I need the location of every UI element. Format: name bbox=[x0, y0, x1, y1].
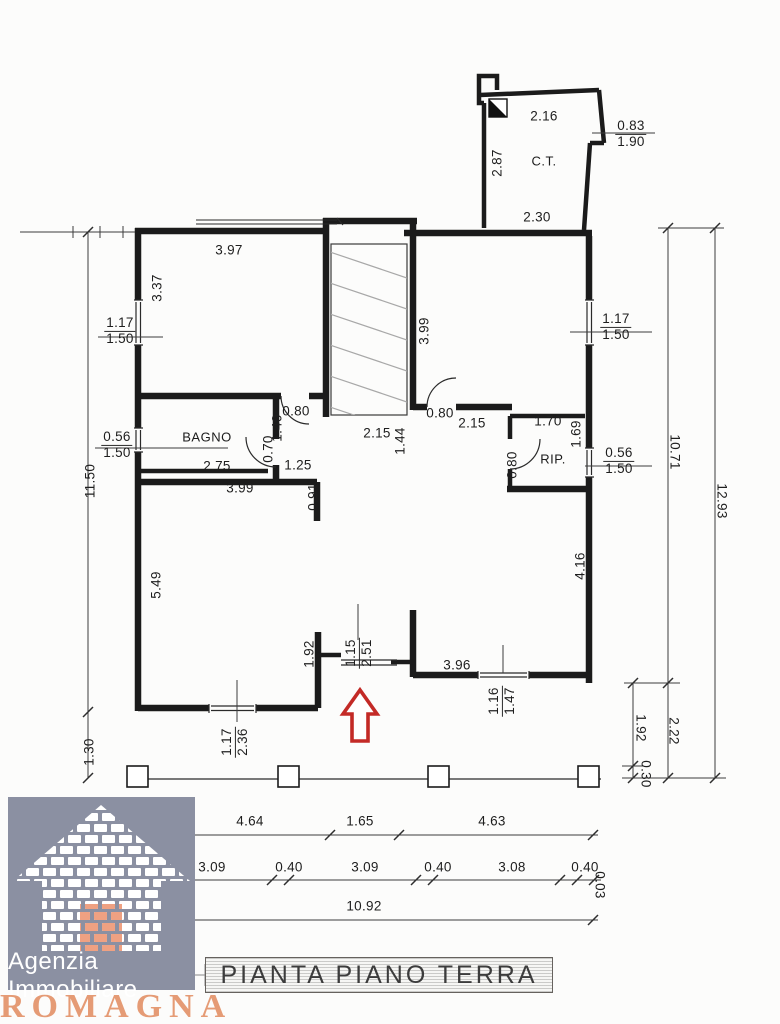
ct-marker bbox=[489, 99, 507, 117]
dim-label-d215a: 2.15 bbox=[363, 426, 390, 441]
dim-label-d192a: 1.92 bbox=[302, 640, 317, 667]
dim-pair-bottom: 1.90 bbox=[617, 135, 644, 150]
dim-label-d215b: 2.15 bbox=[458, 416, 485, 431]
dim-label-d216: 2.16 bbox=[530, 109, 557, 124]
dim-label-d275: 2.75 bbox=[203, 459, 230, 474]
dim-pair-top: 1.16 bbox=[487, 685, 503, 716]
dim-label-d1071: 10.71 bbox=[668, 434, 683, 469]
dim-label-d040a: 0.40 bbox=[275, 860, 302, 875]
dim-label-d416: 4.16 bbox=[573, 552, 588, 579]
entrance-arrow bbox=[343, 690, 377, 741]
dim-label-d464: 4.64 bbox=[236, 814, 263, 829]
dim-label-d080c: 0.80 bbox=[505, 451, 520, 478]
dim-pair-bottom: 1.47 bbox=[503, 687, 518, 714]
room-label-bagno: BAGNO bbox=[182, 430, 231, 445]
dim-pair-pL2: 0.561.50 bbox=[101, 430, 132, 460]
dim-label-d165: 1.65 bbox=[346, 814, 373, 829]
dim-pair-bottom: 1.50 bbox=[602, 328, 629, 343]
dim-label-d130: 1.30 bbox=[82, 738, 97, 765]
dim-pair-pR1: 1.171.50 bbox=[600, 312, 631, 342]
plan-title: PIANTA PIANO TERRA bbox=[220, 961, 537, 990]
dim-label-d080b: 0.80 bbox=[426, 406, 453, 421]
dim-pair-pW2: 1.172.36 bbox=[220, 726, 250, 757]
agency-logo: Agenzia Immobiliare bbox=[8, 797, 195, 990]
porch-pillars bbox=[127, 766, 599, 787]
dim-pair-bottom: 1.50 bbox=[106, 332, 133, 347]
dim-label-d399b: 3.99 bbox=[226, 481, 253, 496]
dim-label-d170: 1.70 bbox=[534, 414, 561, 429]
dim-pair-top: 1.17 bbox=[220, 726, 236, 757]
agency-brand: ROMAGNA bbox=[0, 988, 206, 1024]
dim-label-d1092: 10.92 bbox=[346, 899, 381, 914]
dim-label-d070: 0.70 bbox=[261, 435, 276, 462]
dim-label-d549: 5.49 bbox=[149, 571, 164, 598]
dim-label-d222: 2.22 bbox=[667, 717, 682, 744]
dim-label-d397: 3.97 bbox=[215, 243, 242, 258]
balcony-rail bbox=[196, 218, 343, 225]
mosaic-house-icon bbox=[8, 801, 195, 951]
dim-pair-pR2: 0.561.50 bbox=[603, 446, 634, 476]
dim-pair-top: 1.17 bbox=[104, 316, 135, 332]
dim-pair-top: 1.15 bbox=[344, 637, 360, 668]
dim-pair-top: 1.17 bbox=[600, 312, 631, 328]
dim-pair-bottom: 2.36 bbox=[236, 728, 251, 755]
dim-label-d399: 3.99 bbox=[417, 317, 432, 344]
room-label-ct: C.T. bbox=[531, 154, 556, 169]
dim-label-d003: 0.03 bbox=[593, 871, 608, 898]
dim-pair-bottom: 1.50 bbox=[605, 462, 632, 477]
plan-title-box: PIANTA PIANO TERRA bbox=[205, 957, 553, 993]
dim-label-d169: 1.69 bbox=[569, 420, 584, 447]
dim-pair-top: 0.56 bbox=[101, 430, 132, 446]
dim-label-d309a: 3.09 bbox=[198, 860, 225, 875]
dim-label-d396: 3.96 bbox=[443, 658, 470, 673]
room-label-rip: RIP. bbox=[540, 452, 566, 467]
dim-pair-pE: 1.152.51 bbox=[344, 637, 374, 668]
dim-pair-pW1: 1.161.47 bbox=[487, 685, 517, 716]
dim-label-d1150: 11.50 bbox=[83, 464, 98, 498]
dim-label-d040b: 0.40 bbox=[424, 860, 451, 875]
dim-label-d308: 3.08 bbox=[498, 860, 525, 875]
dim-pair-pCT: 0.831.90 bbox=[615, 119, 646, 149]
dim-label-d230: 2.30 bbox=[523, 210, 550, 225]
dim-label-d463: 4.63 bbox=[478, 814, 505, 829]
dim-pair-bottom: 2.51 bbox=[360, 639, 375, 666]
dim-pair-bottom: 1.50 bbox=[103, 446, 130, 461]
dim-label-d125: 1.25 bbox=[284, 458, 311, 473]
dim-pair-top: 0.83 bbox=[615, 119, 646, 135]
dim-label-d192b: 1.92 bbox=[634, 714, 649, 741]
dim-label-d080a: 0.80 bbox=[282, 404, 309, 419]
dim-label-d1293: 12.93 bbox=[715, 483, 730, 518]
stairwell-hatch bbox=[330, 252, 407, 433]
dim-label-d287: 2.87 bbox=[490, 149, 505, 176]
dim-label-d144: 1.44 bbox=[393, 427, 408, 454]
dim-label-d309b: 3.09 bbox=[351, 860, 378, 875]
dim-pair-top: 0.56 bbox=[603, 446, 634, 462]
dim-label-d091: 0.91 bbox=[306, 483, 321, 510]
dim-label-d030: 0.30 bbox=[639, 760, 654, 787]
dim-pair-pL1: 1.171.50 bbox=[104, 316, 135, 346]
dim-label-d337: 3.37 bbox=[150, 274, 165, 301]
floorplan-page: BAGNO RIP. C.T. 3.972.162.302.873.3711.5… bbox=[0, 0, 780, 1024]
door-arcs bbox=[246, 378, 540, 469]
